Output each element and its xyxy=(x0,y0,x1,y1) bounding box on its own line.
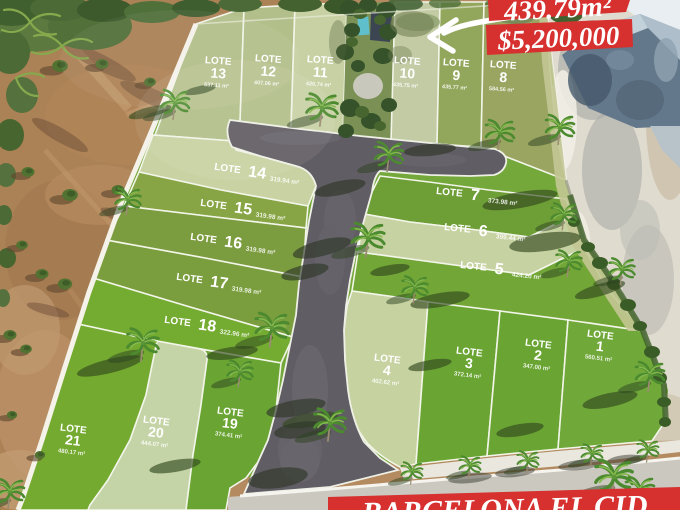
svg-text:21: 21 xyxy=(64,431,82,449)
svg-text:10: 10 xyxy=(399,65,416,82)
svg-text:14: 14 xyxy=(247,164,267,183)
svg-text:19: 19 xyxy=(221,414,239,432)
svg-text:6: 6 xyxy=(478,223,489,241)
svg-text:12: 12 xyxy=(260,63,277,80)
svg-text:5: 5 xyxy=(494,261,505,279)
svg-text:20: 20 xyxy=(147,423,165,441)
svg-text:17: 17 xyxy=(209,274,229,293)
svg-text:15: 15 xyxy=(233,200,253,219)
svg-text:7: 7 xyxy=(470,187,481,205)
svg-text:$5,200,000: $5,200,000 xyxy=(496,20,620,55)
svg-text:11: 11 xyxy=(312,64,328,81)
svg-text:13: 13 xyxy=(210,65,227,82)
svg-text:9: 9 xyxy=(452,67,461,84)
svg-text:18: 18 xyxy=(197,317,217,336)
svg-text:16: 16 xyxy=(223,234,243,253)
svg-text:8: 8 xyxy=(499,69,508,86)
